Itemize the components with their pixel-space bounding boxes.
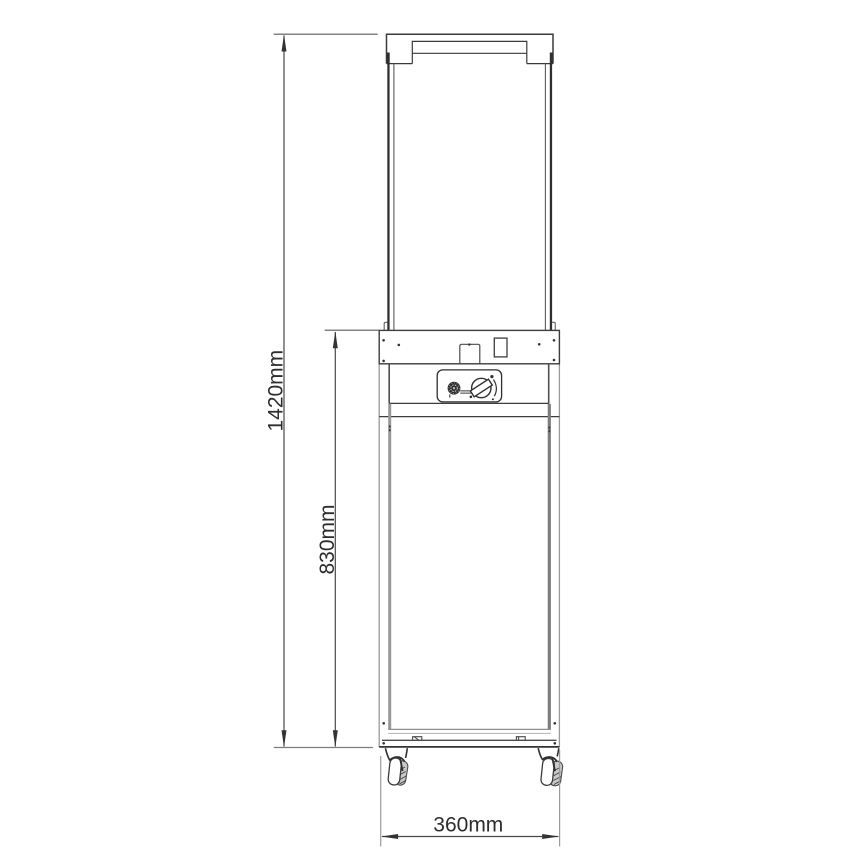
svg-text:1420mm: 1420mm: [265, 350, 288, 432]
svg-text:360mm: 360mm: [433, 813, 503, 836]
svg-text:830mm: 830mm: [316, 504, 339, 574]
